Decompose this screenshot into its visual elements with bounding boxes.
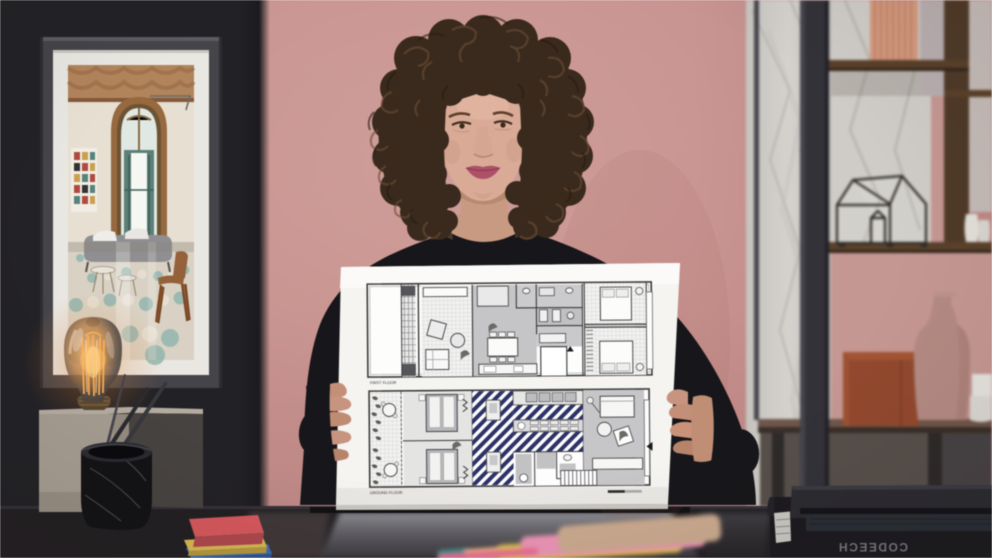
svg-text:CODEECH: CODEECH xyxy=(837,540,908,554)
svg-text:GROUND FLOOR: GROUND FLOOR xyxy=(370,490,403,495)
svg-text:FIRST FLOOR: FIRST FLOOR xyxy=(370,380,397,385)
